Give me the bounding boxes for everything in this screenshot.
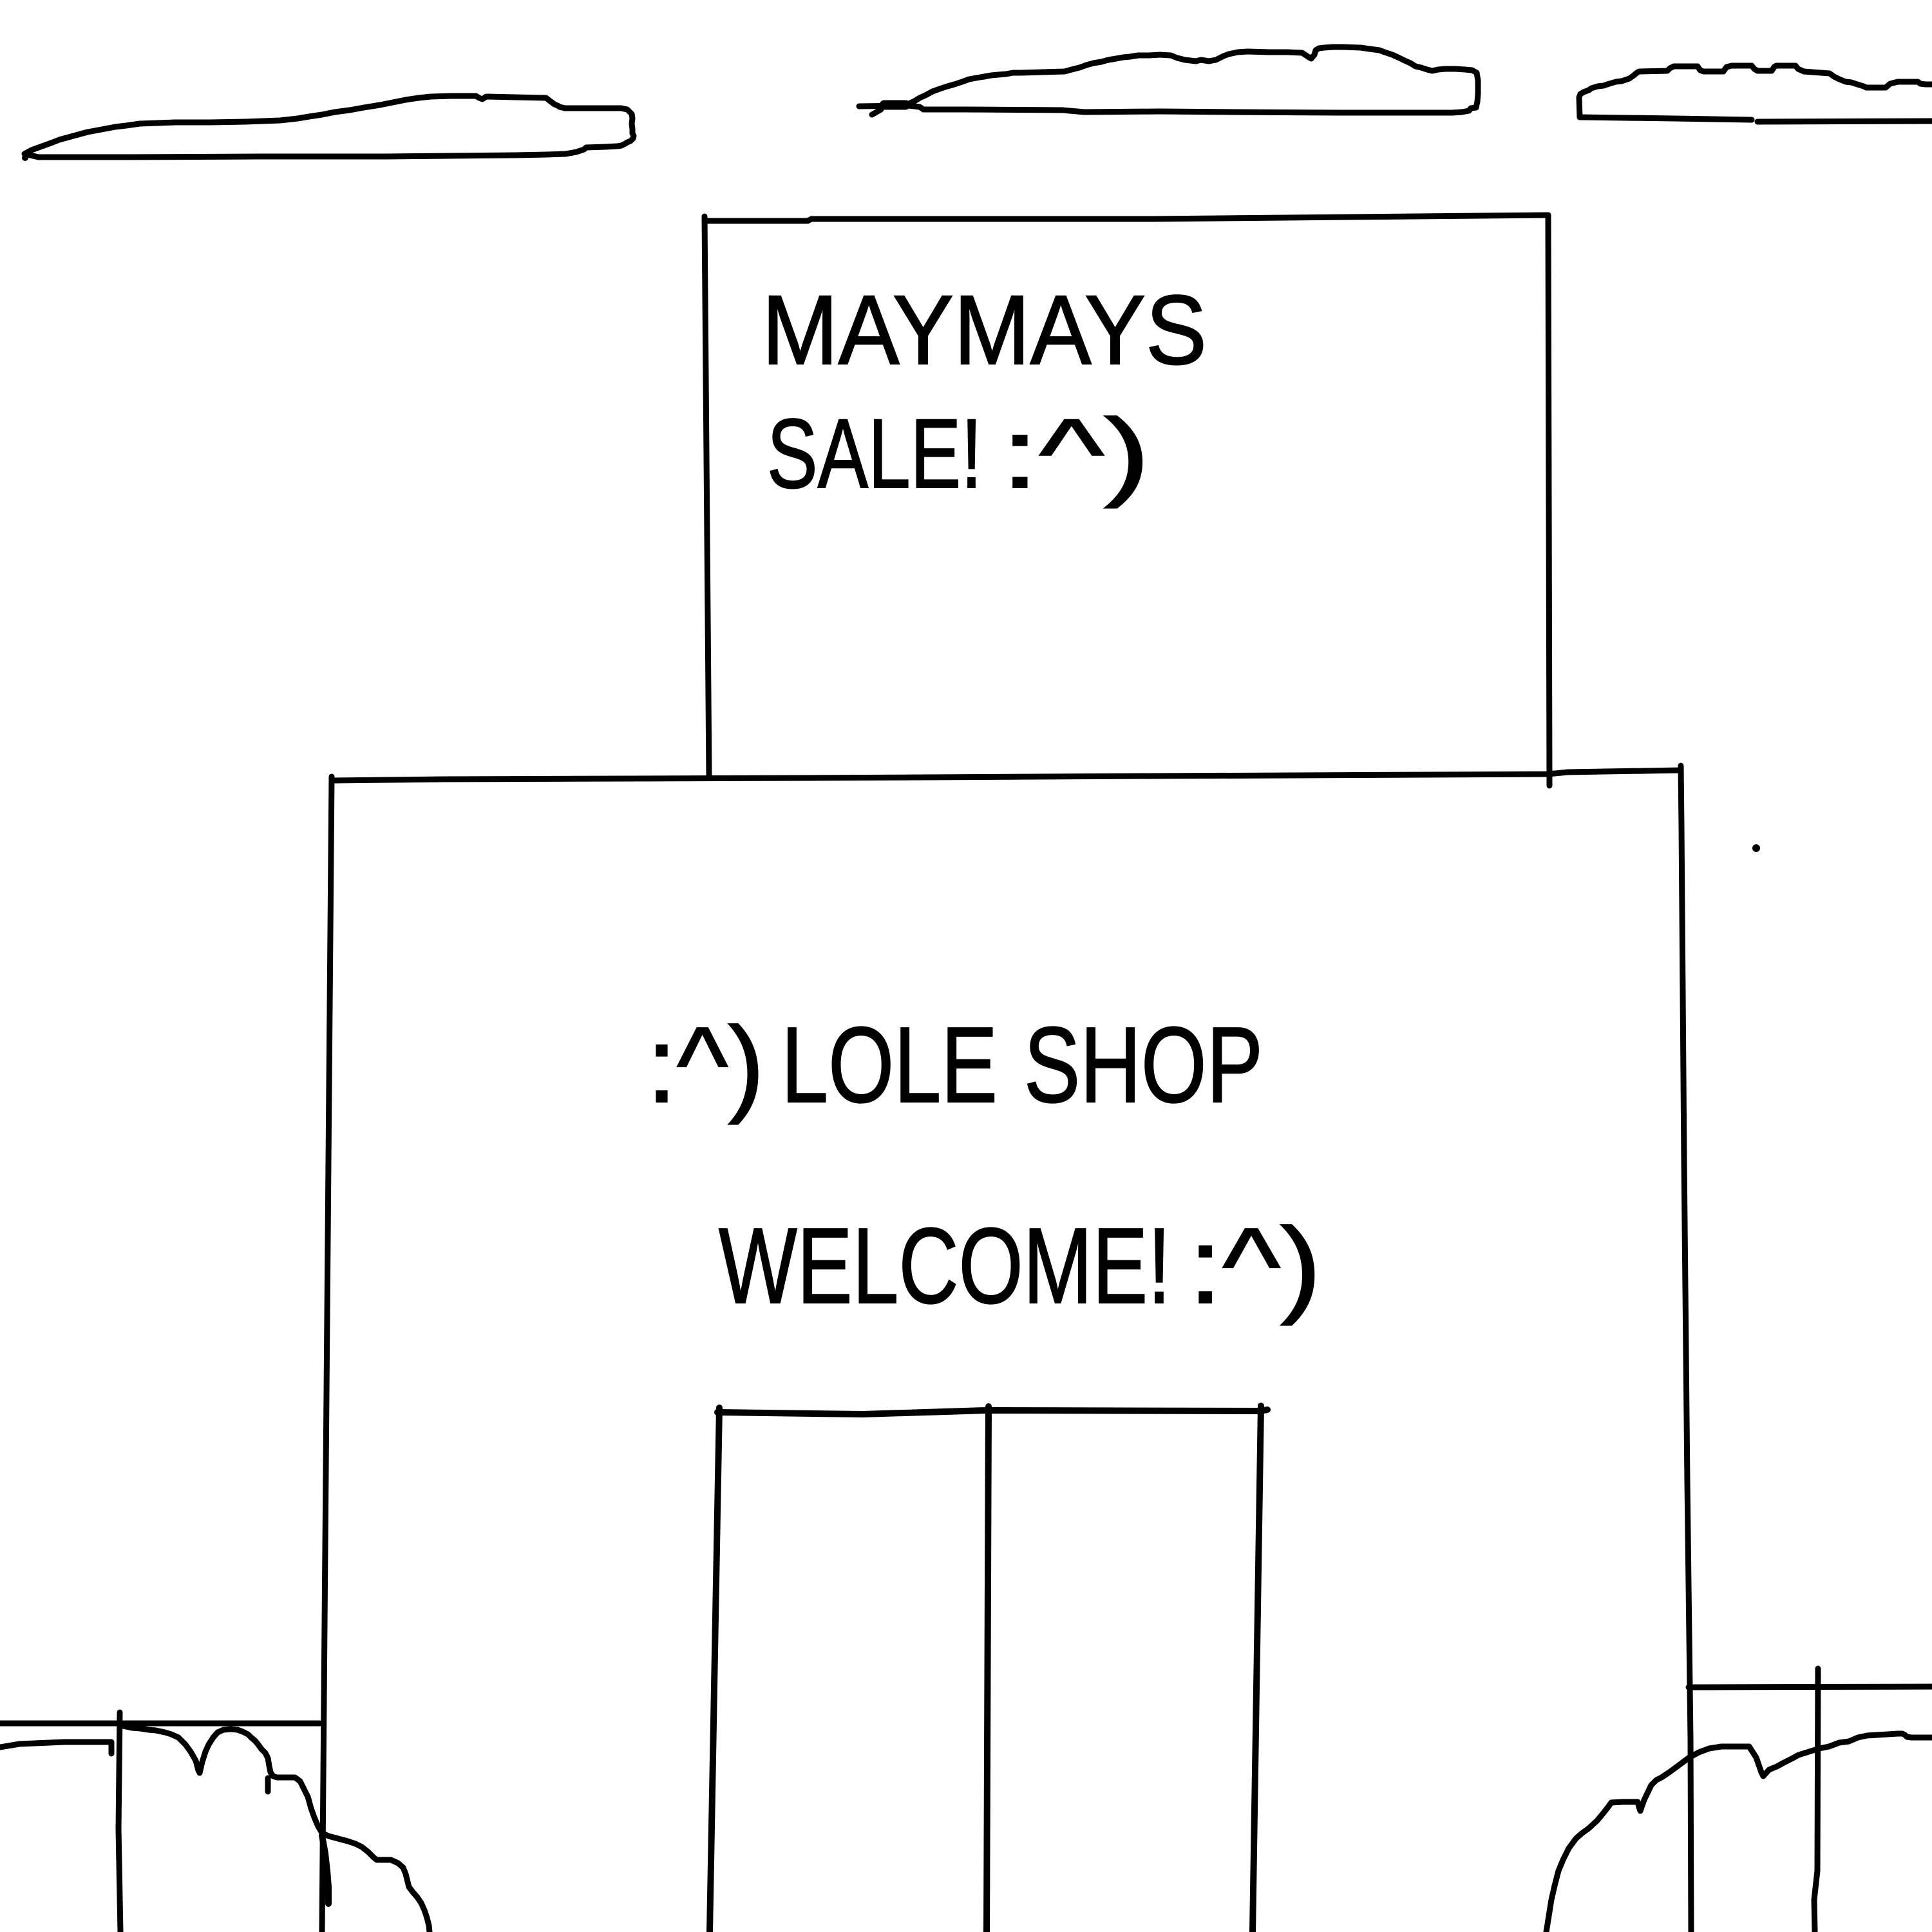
svg-text:WELCOME!:^): WELCOME!:^) xyxy=(719,1206,1321,1326)
svg-text:SALE!:^): SALE!:^) xyxy=(767,399,1150,509)
svg-text::^)LOLESHOP: :^)LOLESHOP xyxy=(647,1005,1263,1125)
svg-text:MAYMAYS: MAYMAYS xyxy=(762,275,1207,385)
